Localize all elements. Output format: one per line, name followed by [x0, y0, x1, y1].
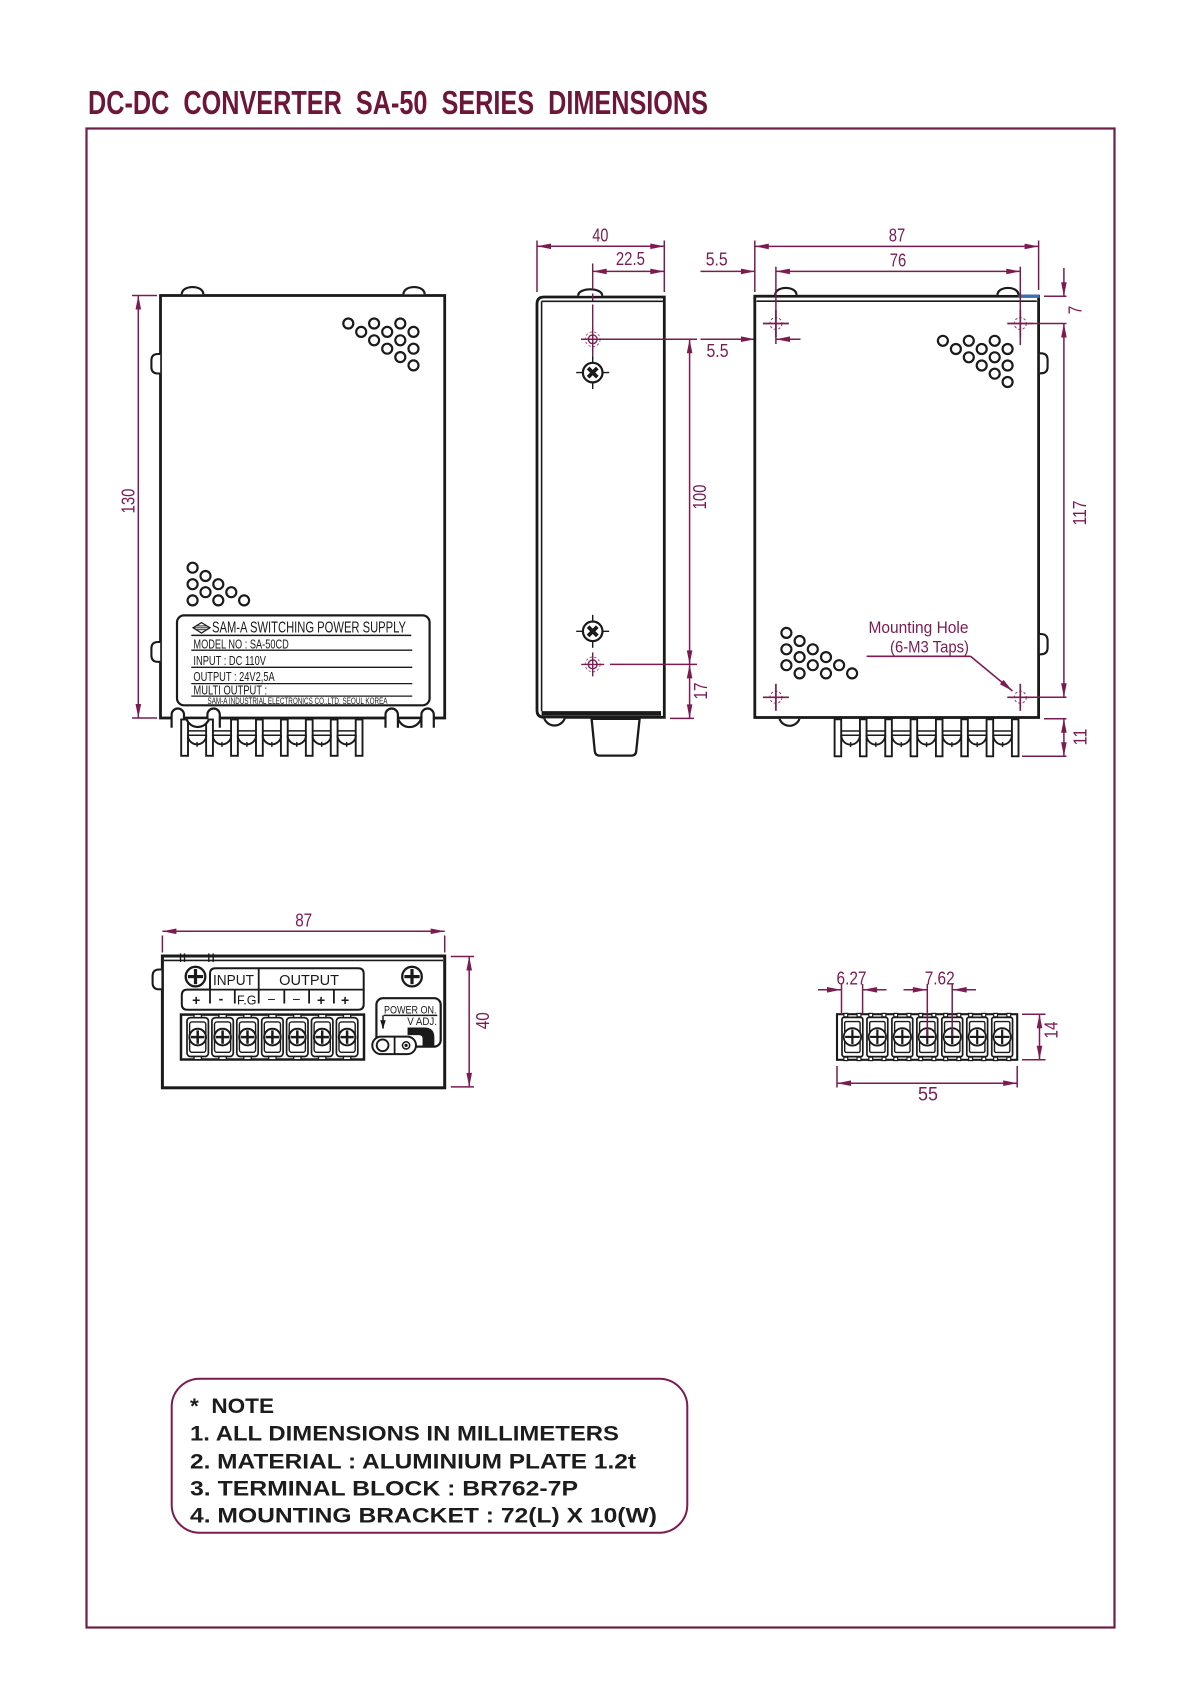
- svg-text:DC-DC CONVERTER SA-50 SERIE: DC-DC CONVERTER SA-50 SERIES DIMENSIONS: [88, 84, 708, 121]
- svg-text:−: −: [292, 991, 300, 1007]
- svg-text:F.G: F.G: [237, 994, 256, 1008]
- svg-text:5.5: 5.5: [706, 249, 728, 269]
- svg-text:4. MOUNTING BRACKET : 72(L) X: 4. MOUNTING BRACKET : 72(L) X 10(W): [190, 1504, 657, 1528]
- svg-text:76: 76: [890, 251, 907, 271]
- svg-text:+: +: [317, 992, 325, 1008]
- svg-text:SAM-A INDUSTRIAL ELECTRONICS C: SAM-A INDUSTRIAL ELECTRONICS CO.,LTD. SE…: [208, 696, 388, 707]
- svg-text:87: 87: [295, 911, 312, 931]
- svg-text:14: 14: [1042, 1022, 1062, 1039]
- svg-text:7.62: 7.62: [925, 968, 955, 988]
- svg-text:Mounting Hole: Mounting Hole: [869, 619, 969, 637]
- svg-text:3. TERMINAL BLOCK : BR762-7P: 3. TERMINAL BLOCK : BR762-7P: [190, 1477, 578, 1501]
- svg-text:* NOTE: * NOTE: [190, 1394, 274, 1418]
- svg-text:1. ALL DIMENSIONS IN MILLIMETE: 1. ALL DIMENSIONS IN MILLIMETERS: [190, 1422, 619, 1446]
- svg-text:40: 40: [473, 1012, 493, 1029]
- svg-text:130: 130: [119, 489, 139, 514]
- svg-text:INPUT : DC 110V: INPUT : DC 110V: [193, 653, 266, 668]
- svg-text:+: +: [192, 992, 200, 1008]
- svg-text:11: 11: [1071, 729, 1091, 746]
- svg-text:7: 7: [1066, 306, 1086, 315]
- svg-text:MODEL NO : SA-50CD: MODEL NO : SA-50CD: [193, 636, 288, 651]
- svg-text:40: 40: [592, 226, 608, 246]
- svg-text:2. MATERIAL : ALUMINIUM PLATE: 2. MATERIAL : ALUMINIUM PLATE 1.2t: [190, 1450, 636, 1474]
- svg-text:SAM-A SWITCHING POWER SUPPLY: SAM-A SWITCHING POWER SUPPLY: [212, 620, 406, 637]
- svg-text:INPUT: INPUT: [213, 973, 254, 989]
- svg-text:OUTPUT: OUTPUT: [279, 973, 339, 989]
- svg-text:(6-M3 Taps): (6-M3 Taps): [890, 639, 969, 657]
- svg-text:6.27: 6.27: [837, 968, 867, 988]
- svg-text:17: 17: [691, 683, 711, 700]
- svg-text:117: 117: [1070, 501, 1090, 526]
- svg-text:V ADJ.: V ADJ.: [407, 1016, 437, 1028]
- svg-text:100: 100: [690, 485, 710, 510]
- svg-text:+: +: [341, 992, 349, 1008]
- svg-text:5.5: 5.5: [707, 341, 729, 361]
- svg-text:−: −: [267, 991, 275, 1007]
- svg-text:87: 87: [889, 226, 906, 246]
- svg-text:55: 55: [918, 1085, 938, 1106]
- svg-text:-: -: [219, 990, 224, 1006]
- svg-text:22.5: 22.5: [616, 249, 645, 269]
